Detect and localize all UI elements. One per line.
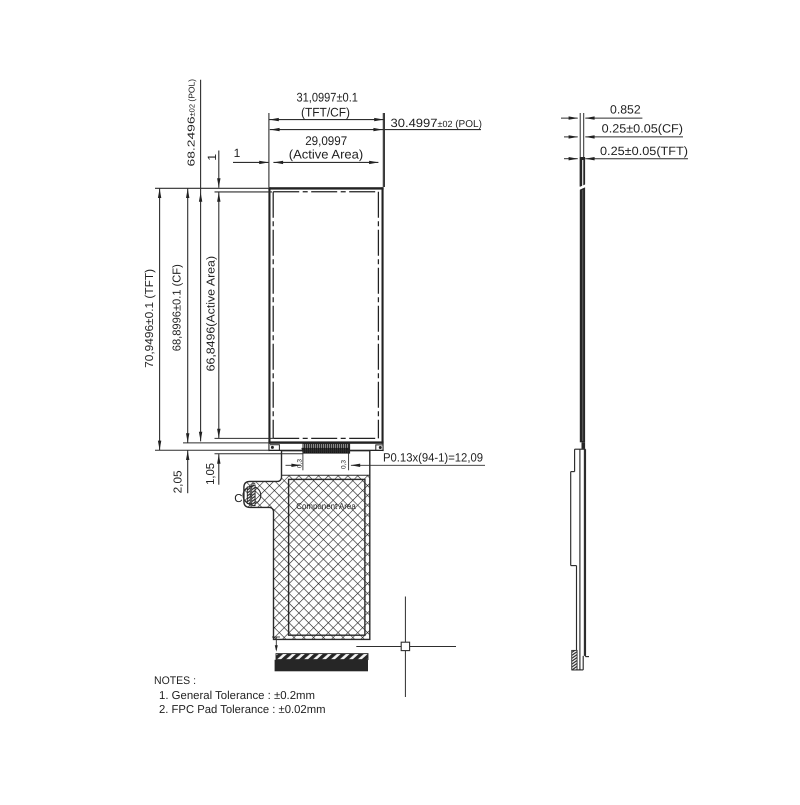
svg-text:66,8496(Active Area): 66,8496(Active Area) xyxy=(205,256,217,372)
svg-text:1,05: 1,05 xyxy=(205,463,217,485)
svg-text:0.25±0.05(CF): 0.25±0.05(CF) xyxy=(602,121,683,135)
svg-text:C: C xyxy=(234,493,242,505)
svg-text:29,0997: 29,0997 xyxy=(305,134,347,148)
svg-text:2. FPC Pad Tolerance : ±0.02mm: 2. FPC Pad Tolerance : ±0.02mm xyxy=(159,704,326,716)
svg-text:P0.13x(94-1)=12,09: P0.13x(94-1)=12,09 xyxy=(383,450,483,464)
svg-text:0,3: 0,3 xyxy=(341,460,348,469)
svg-text:(Active Area): (Active Area) xyxy=(289,148,364,162)
svg-text:0.852: 0.852 xyxy=(610,103,641,117)
svg-text:(TFT/CF): (TFT/CF) xyxy=(301,106,350,120)
svg-text:30.4997±02 (POL): 30.4997±02 (POL) xyxy=(391,116,482,130)
svg-text:70,9496±0.1 (TFT): 70,9496±0.1 (TFT) xyxy=(144,269,156,368)
svg-text:Component Area: Component Area xyxy=(296,501,356,511)
svg-text:31,0997±0.1: 31,0997±0.1 xyxy=(296,90,358,104)
svg-text:NOTES :: NOTES : xyxy=(154,675,196,687)
svg-text:2,05: 2,05 xyxy=(172,470,184,493)
svg-text:68,8996±0.1 (CF): 68,8996±0.1 (CF) xyxy=(172,264,184,351)
svg-text:0.25±0.05(TFT): 0.25±0.05(TFT) xyxy=(600,144,688,158)
svg-text:1: 1 xyxy=(234,146,241,160)
svg-text:1. General Tolerance : ±0.2mm: 1. General Tolerance : ±0.2mm xyxy=(159,690,315,702)
svg-text:68.2496±02 (POL): 68.2496±02 (POL) xyxy=(187,79,198,167)
svg-text:0,3: 0,3 xyxy=(297,459,304,468)
svg-text:1: 1 xyxy=(205,154,219,161)
